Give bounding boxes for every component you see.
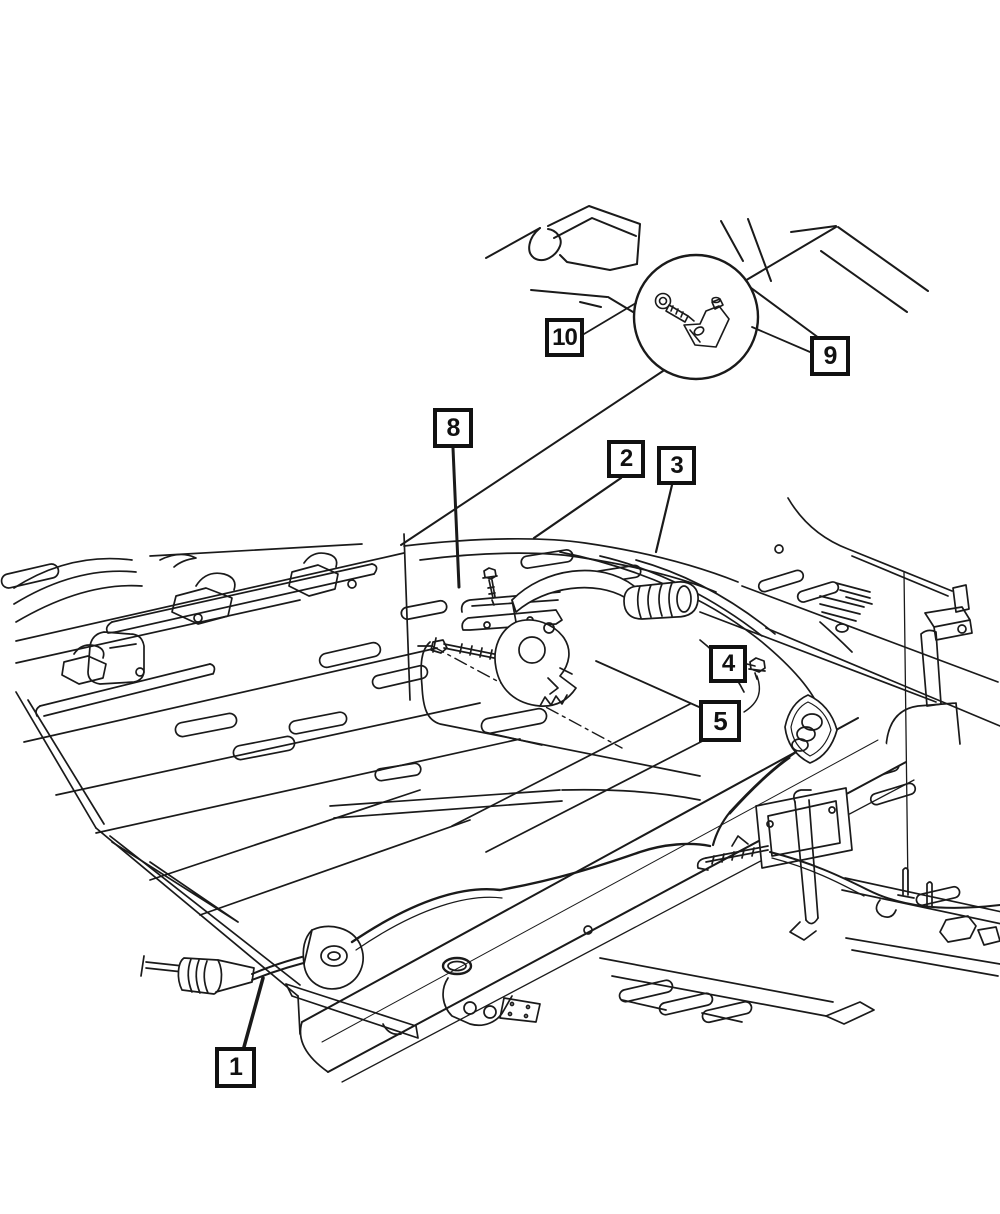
parts-diagram-stage: 1 2 3 4 5 8 9 10 xyxy=(0,0,1000,1214)
rear-rail-and-studs xyxy=(842,868,1000,976)
top-strap-bracket xyxy=(486,206,640,312)
front-left-floor-pan xyxy=(14,544,520,833)
callout-box-9[interactable]: 9 xyxy=(810,336,850,376)
callout-label: 1 xyxy=(229,1053,242,1082)
callout-box-1[interactable]: 1 xyxy=(215,1047,256,1088)
park-brake-lever xyxy=(418,568,698,706)
callout-label: 4 xyxy=(722,650,734,678)
callout-label: 5 xyxy=(713,706,726,737)
callout-box-4[interactable]: 4 xyxy=(709,645,747,683)
callout-label: 8 xyxy=(447,414,460,443)
callout-box-3[interactable]: 3 xyxy=(657,446,696,485)
callout-box-5[interactable]: 5 xyxy=(699,700,741,742)
callout-box-10[interactable]: 10 xyxy=(545,318,584,357)
callout-label: 3 xyxy=(670,452,682,480)
callout-box-8[interactable]: 8 xyxy=(433,408,473,448)
callout-box-2[interactable]: 2 xyxy=(607,440,645,478)
line-art xyxy=(0,0,1000,1214)
callout-label: 2 xyxy=(620,445,632,473)
callout-label: 9 xyxy=(824,342,837,371)
callout-label: 10 xyxy=(552,324,577,352)
